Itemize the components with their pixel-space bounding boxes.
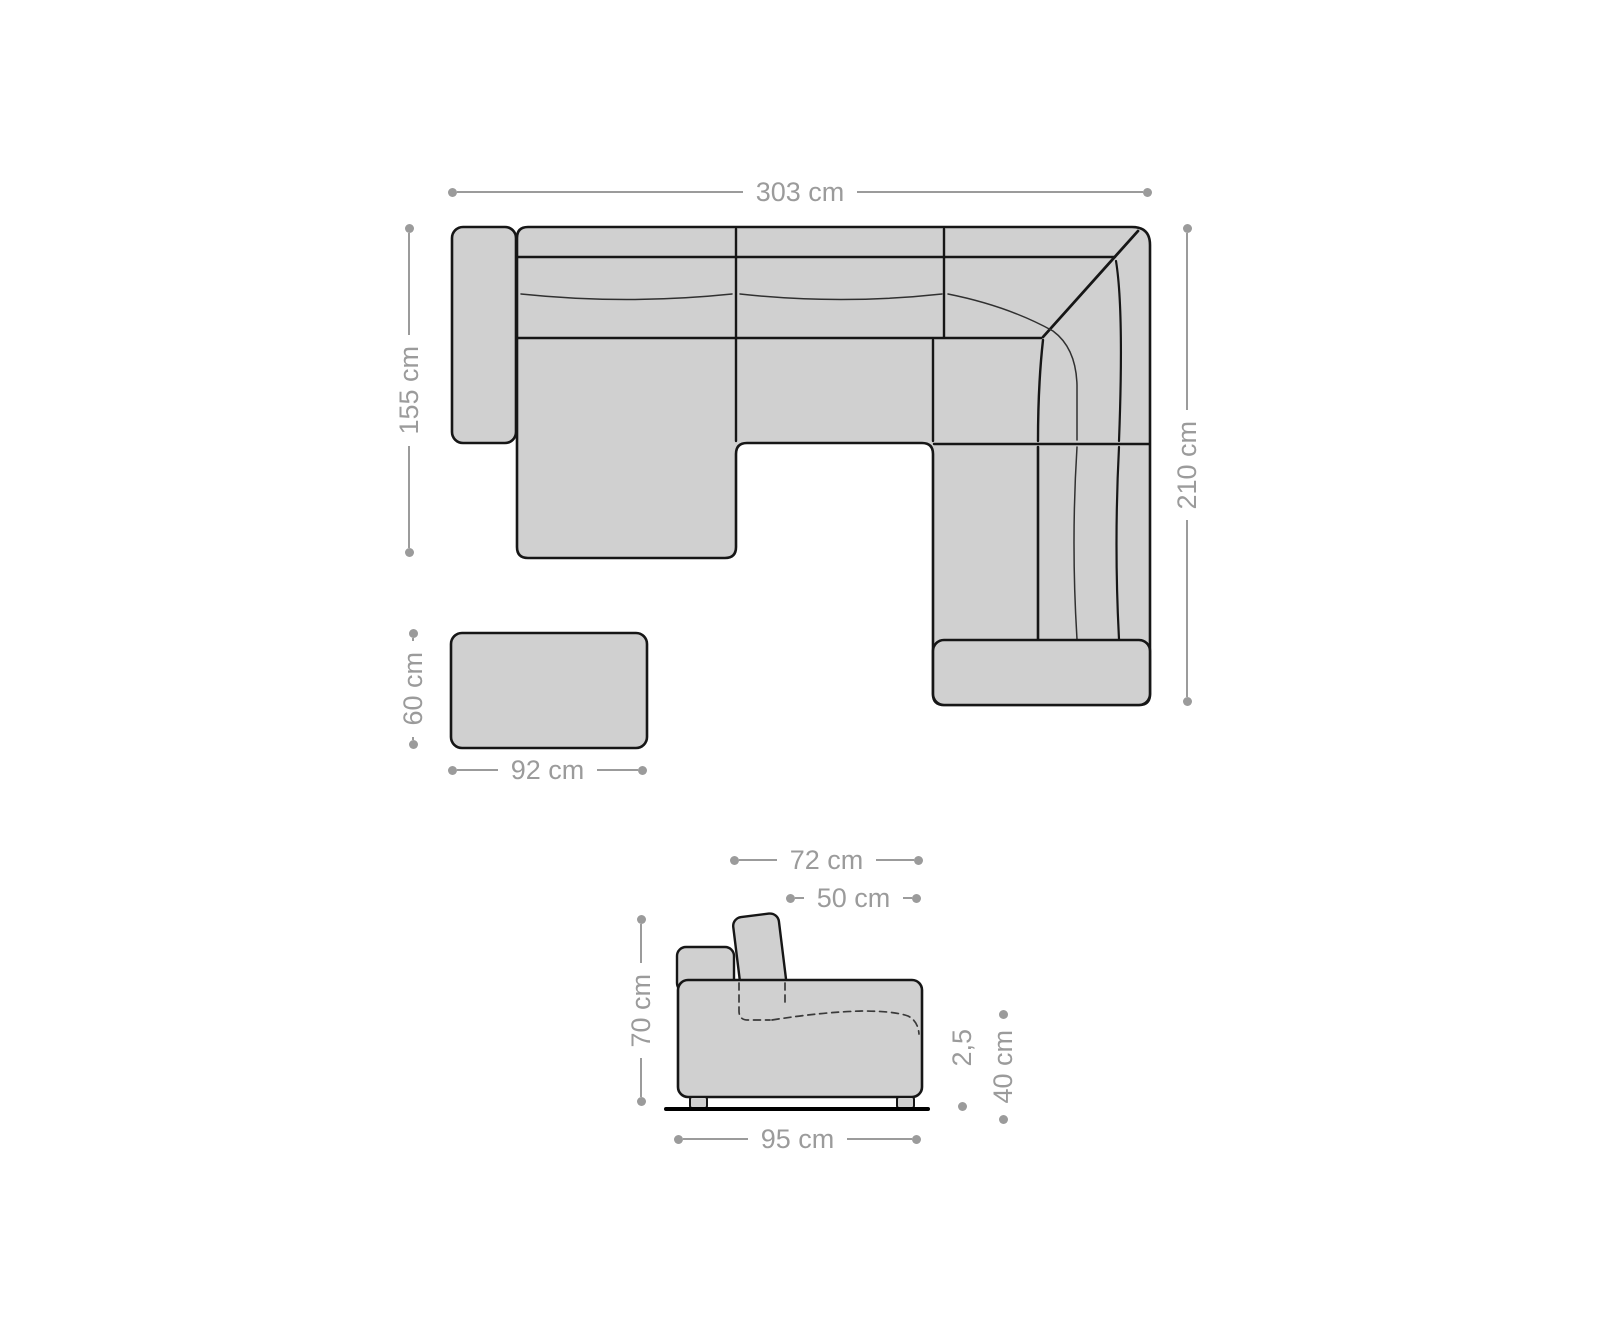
front-band-right-wing (933, 640, 1150, 705)
foot-right (897, 1097, 914, 1108)
furniture-dimension-diagram: 303 cm 155 cm 210 cm 60 cm 92 cm 72 cm (0, 0, 1600, 1333)
dimension-label-backrest-cushion-width: 50 cm (804, 885, 904, 912)
dimension-total-width: 303 cm (448, 187, 1152, 197)
sofa-side-view (666, 913, 928, 1109)
dimension-depth-with-backrest: 72 cm (730, 855, 923, 865)
dimension-endpoint-dot (405, 548, 414, 557)
foot-left (690, 1097, 707, 1108)
dimension-endpoint-dot (638, 766, 647, 775)
dimension-corner-depth: 210 cm (1182, 224, 1192, 706)
dimension-seat-height: 40 cm (998, 1010, 1008, 1108)
dimension-endpoint-dot (999, 1115, 1008, 1124)
dimension-label-stool-depth: 60 cm (400, 641, 427, 737)
dimension-endpoint-dot (958, 1102, 967, 1111)
dimension-foot-height: 2,5 (957, 1025, 967, 1111)
dimension-label-total-height: 70 cm (628, 963, 655, 1059)
dimension-endpoint-dot (912, 894, 921, 903)
dimension-endpoint-dot (730, 856, 739, 865)
dimension-endpoint-dot (637, 1097, 646, 1106)
dimension-backrest-cushion-width: 50 cm (786, 893, 921, 903)
dimension-endpoint-dot (999, 1010, 1008, 1019)
dimension-endpoint-dot (409, 629, 418, 638)
dimension-endpoint-dot (914, 856, 923, 865)
dimension-label-total-width: 303 cm (743, 179, 858, 206)
dimension-label-seat-height: 40 cm (990, 1019, 1017, 1115)
dimension-label-stool-width: 92 cm (498, 757, 598, 784)
armrest-left-top-view (452, 227, 516, 443)
dimension-endpoint-dot (448, 766, 457, 775)
dimension-endpoint-dot (786, 894, 795, 903)
dimension-base-depth: 95 cm (674, 1134, 921, 1144)
dimension-label-depth-with-backrest: 72 cm (777, 847, 877, 874)
dimension-label-corner-depth: 210 cm (1174, 410, 1201, 521)
dimension-recamiere-depth: 155 cm (404, 224, 414, 557)
dimension-label-foot-height: 2,5 (949, 1025, 976, 1078)
dimension-endpoint-dot (674, 1135, 683, 1144)
side-body (678, 980, 922, 1097)
dimension-endpoint-dot (1143, 188, 1152, 197)
dimension-total-height: 70 cm (636, 915, 646, 1106)
dimension-label-base-depth: 95 cm (748, 1126, 848, 1153)
dimension-stool-width: 92 cm (448, 765, 647, 775)
dimension-label-recamiere-depth: 155 cm (396, 335, 423, 446)
dimension-endpoint-dot (1183, 697, 1192, 706)
dimension-endpoint-dot (637, 915, 646, 924)
dimension-endpoint-dot (448, 188, 457, 197)
dimension-endpoint-dot (1183, 224, 1192, 233)
dimension-stool-depth: 60 cm (408, 629, 418, 749)
dimension-endpoint-dot (405, 224, 414, 233)
stool-top-view (451, 633, 647, 748)
dimension-endpoint-dot (912, 1135, 921, 1144)
dimension-endpoint-dot (409, 740, 418, 749)
